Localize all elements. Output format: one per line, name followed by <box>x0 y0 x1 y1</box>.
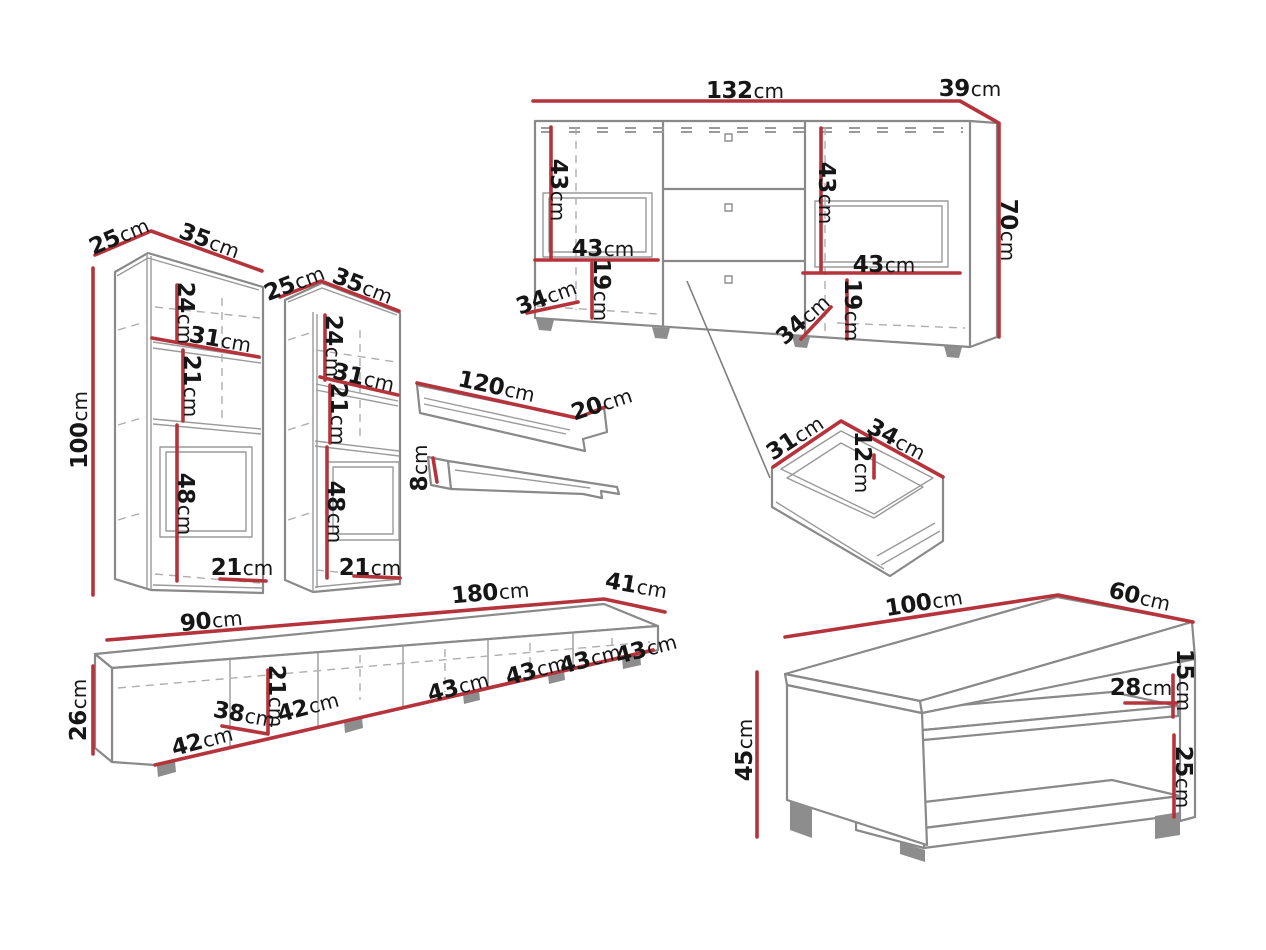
tv-stand-left-face <box>95 654 112 762</box>
coffee-table-bottom-clearance-label: 25cm <box>1170 746 1196 809</box>
cabinet-left-depth-label: 25cm <box>85 212 153 260</box>
wall-shelf-height-label: 8cm <box>407 445 433 492</box>
cabinet-right-base-width-label: 21cm <box>339 555 402 581</box>
cabinet-left-middle-section-label: 21cm <box>178 355 204 418</box>
tv-stand: 90cm 180cm 41cm 26cm 42cm 38cm 21cm 42cm… <box>66 568 680 777</box>
tall-cabinet-right: 25cm 35cm 24cm 31cm 21cm 48cm 21cm <box>261 260 402 592</box>
coffee-table-shelf-inset-label: 28cm <box>1110 675 1173 701</box>
tv-stand-depth-label: 41cm <box>603 568 669 604</box>
drawer-height-label: 12cm <box>849 431 875 494</box>
sideboard-height-label: 70cm <box>995 199 1021 262</box>
sideboard-left-inner-height-label: 43cm <box>545 159 571 222</box>
sideboard-side-panel <box>970 121 997 347</box>
diagram-canvas: 132cm 39cm 70cm 43cm 43cm 19cm 34cm 43cm… <box>0 0 1266 950</box>
coffee-table-top-clearance-label: 15cm <box>1171 649 1197 712</box>
wall-shelves: 120cm 20cm 8cm <box>407 366 636 498</box>
cabinet-right-lower-section-label: 48cm <box>322 481 348 544</box>
furniture-dimension-diagram: 132cm 39cm 70cm 43cm 43cm 19cm 34cm 43cm… <box>0 0 1266 950</box>
cabinet-left-base-width-label: 21cm <box>211 555 274 581</box>
sideboard-right-shelf-width-label: 43cm <box>853 252 916 278</box>
tv-stand-height-label: 26cm <box>66 679 92 742</box>
sideboard-right-base-height-label: 19cm <box>839 279 865 342</box>
tall-cabinet-left: 25cm 35cm 100cm 24cm 31cm 21cm 48cm 21cm <box>67 212 273 595</box>
cabinet-left-height-label: 100cm <box>67 391 93 469</box>
tv-stand-left-section-label: 90cm <box>179 605 244 637</box>
drawer-insert: 31cm 34cm 12cm <box>762 410 943 576</box>
cabinet-right-middle-section-label: 21cm <box>325 383 351 446</box>
cabinet-left-width-label: 35cm <box>176 219 244 265</box>
sideboard-left-base-height-label: 19cm <box>588 259 614 322</box>
wall-shelf-side-body <box>448 461 619 498</box>
sideboard-width-label: 132cm <box>706 78 784 104</box>
sideboard-right-inner-height-label: 43cm <box>813 162 839 225</box>
sideboard-depth-label: 39cm <box>939 76 1002 102</box>
cabinet-left-lower-section-label: 48cm <box>172 473 198 536</box>
coffee-table-height-label: 45cm <box>732 719 758 782</box>
coffee-table: 100cm 60cm 45cm 15cm 28cm 25cm <box>732 577 1197 862</box>
